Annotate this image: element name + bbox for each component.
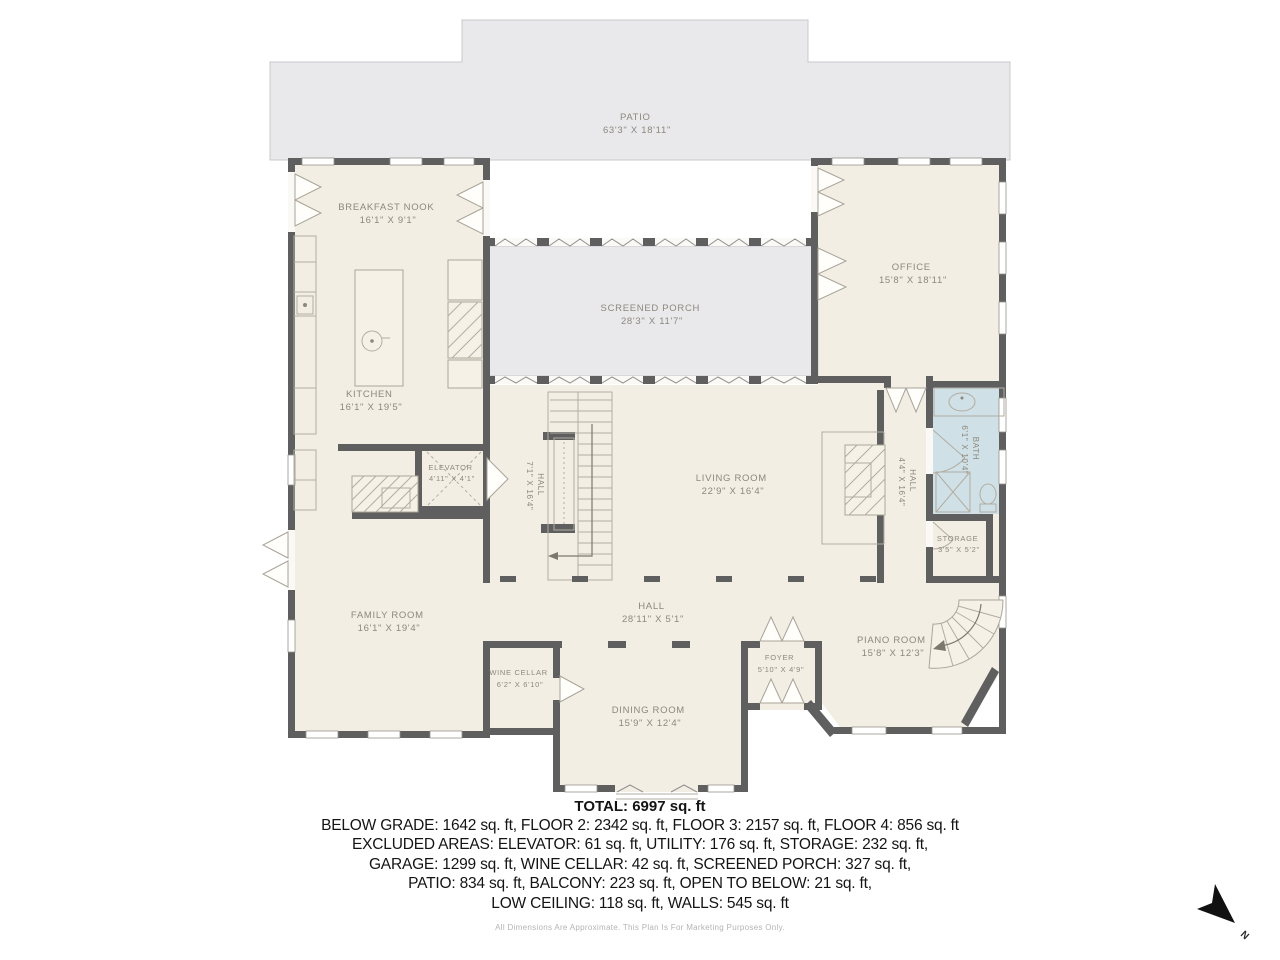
summary-line: BELOW GRADE: 1642 sq. ft, FLOOR 2: 2342 … <box>0 816 1280 835</box>
disclaimer-text: All Dimensions Are Approximate. This Pla… <box>0 923 1280 932</box>
area-summary: TOTAL: 6997 sq. ft BELOW GRADE: 1642 sq.… <box>0 797 1280 932</box>
floor-plan-page: PATIO 63'3" X 18'11" BREAKFAST NOOK 16'1… <box>0 0 1280 960</box>
summary-line: LOW CEILING: 118 sq. ft, WALLS: 545 sq. … <box>0 894 1280 913</box>
kitchen-island <box>355 270 403 386</box>
butler-pantry <box>352 476 418 512</box>
patio-area <box>270 20 1010 160</box>
summary-line: EXCLUDED AREAS: ELEVATOR: 61 sq. ft, UTI… <box>0 835 1280 854</box>
total-area: TOTAL: 6997 sq. ft <box>0 797 1280 816</box>
summary-line: PATIO: 834 sq. ft, BALCONY: 223 sq. ft, … <box>0 874 1280 893</box>
summary-line: GARAGE: 1299 sq. ft, WINE CELLAR: 42 sq.… <box>0 855 1280 874</box>
